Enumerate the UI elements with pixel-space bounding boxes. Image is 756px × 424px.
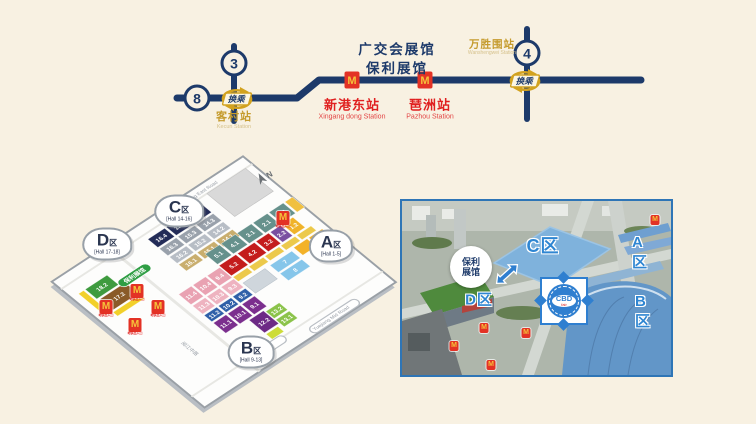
cbd-logo-circle: CBD fair — [547, 284, 581, 318]
metro-entrance-icon: M地铁出入口 — [277, 211, 290, 225]
photo-zone-label-a: A区 — [632, 234, 658, 272]
zone-range: [Hall 14-16] — [166, 218, 192, 223]
zone-badge-d: D区[Hall 17-18] — [82, 228, 132, 261]
zone-badge-a: A区[Hall 1-5] — [309, 230, 353, 263]
metro-entrance-icon: M地铁出入口 — [129, 318, 142, 332]
metro-entrance-icon: M — [651, 215, 660, 225]
metro-entrance-icon: M地铁出入口 — [100, 300, 113, 314]
zone-range: [Hall 17-18] — [94, 251, 120, 256]
zone-qu: 区 — [333, 241, 341, 250]
metro-entrance-label: 地铁出入口 — [150, 314, 165, 318]
photo-zone-label-b: B区 — [635, 293, 659, 331]
poly-hall-badge: 保利 展馆 — [450, 246, 492, 288]
zone-range: [Hall 9-13] — [240, 359, 263, 364]
metro-entrance-icon: M — [450, 341, 459, 351]
metro-entrance-label: 地铁出入口 — [127, 332, 142, 336]
photo-zone-label-c: C区 — [527, 232, 560, 258]
zone-letter: B — [241, 339, 253, 358]
cbd-logo-oval: CBD fair — [552, 295, 576, 307]
zone-letter: C — [169, 198, 181, 217]
metro-entrance-label: 地铁出入口 — [275, 225, 290, 229]
zone-qu: 区 — [253, 347, 261, 356]
page: M M 换乘 换乘 — [0, 0, 756, 424]
cbd-logo-ring: CBD fair — [549, 286, 579, 316]
photo-labels: C区A区B区D区MMMMM — [402, 201, 671, 375]
zone-letter: D — [97, 231, 109, 250]
zone-letter: A — [321, 233, 333, 252]
poly-badge-line1: 保利 — [462, 257, 480, 267]
metro-entrance-label: 地铁出入口 — [129, 298, 144, 302]
metro-entrance-icon: M — [522, 328, 531, 338]
metro-entrance-icon: M — [480, 323, 489, 333]
metro-entrance-icon: M — [487, 360, 496, 370]
metro-entrance-icon: M地铁出入口 — [131, 284, 144, 298]
zone-range: [Hall 1-5] — [321, 253, 341, 258]
zone-qu: 区 — [109, 239, 117, 248]
metro-entrance-icon: M地铁出入口 — [152, 300, 165, 314]
cbd-fair-logo: CBD fair — [540, 277, 588, 325]
photo-zone-label-d: D区 — [465, 289, 493, 310]
zone-badge-b: B区[Hall 9-13] — [228, 336, 275, 369]
poly-badge-line2: 展馆 — [462, 267, 480, 277]
cbd-logo-subtext: fair — [561, 303, 567, 307]
zone-badge-c: C区[Hall 14-16] — [154, 195, 204, 228]
aerial-photo: C区A区B区D区MMMMM 保利 展馆 CBD fair — [400, 199, 673, 377]
zone-qu: 区 — [181, 206, 189, 215]
metro-entrance-label: 地铁出入口 — [98, 314, 113, 318]
